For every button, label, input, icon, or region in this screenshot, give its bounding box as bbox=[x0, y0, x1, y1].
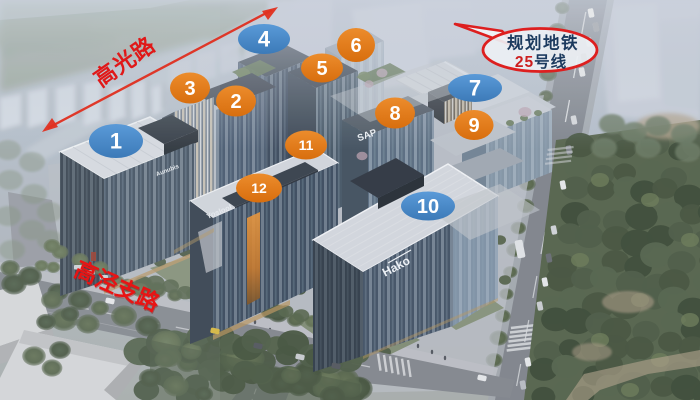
svg-text:3: 3 bbox=[184, 78, 195, 100]
svg-text:5: 5 bbox=[316, 58, 327, 80]
svg-text:1: 1 bbox=[110, 129, 122, 154]
svg-text:9: 9 bbox=[468, 115, 479, 137]
svg-text:7: 7 bbox=[469, 76, 481, 101]
svg-text:4: 4 bbox=[258, 27, 271, 52]
svg-text:25号线: 25号线 bbox=[515, 52, 567, 71]
svg-text:8: 8 bbox=[389, 103, 400, 125]
svg-text:规划地铁: 规划地铁 bbox=[507, 33, 579, 53]
svg-text:12: 12 bbox=[251, 180, 267, 196]
svg-text:6: 6 bbox=[350, 35, 361, 57]
svg-text:10: 10 bbox=[417, 196, 439, 218]
svg-text:2: 2 bbox=[230, 91, 241, 113]
svg-text:11: 11 bbox=[299, 137, 314, 153]
